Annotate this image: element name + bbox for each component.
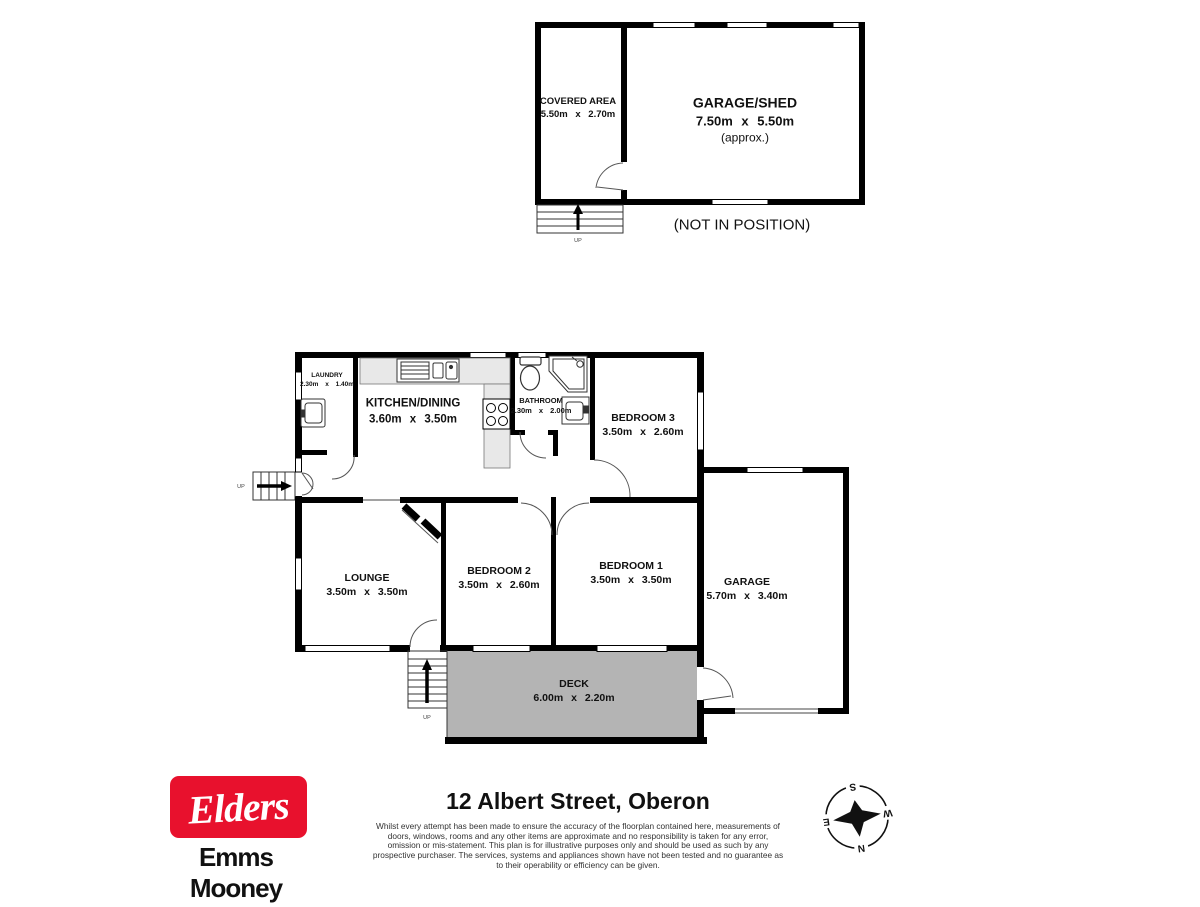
deck-stairs — [408, 651, 447, 708]
entry-stairs — [253, 472, 295, 500]
bedroom2-door — [402, 506, 440, 543]
not-in-position-caption: (NOT IN POSITION) — [674, 217, 810, 234]
room-label-laundry: LAUNDRY 2.30m x 1.40m — [300, 372, 354, 390]
compass-icon: N E S W — [814, 774, 900, 860]
room-label-bathroom: BATHROOM 2.30m x 2.00m — [511, 396, 572, 416]
room-label-kitchen-dining: KITCHEN/DINING 3.60m x 3.50m — [366, 396, 461, 427]
outbuilding-door — [596, 163, 623, 190]
shower-icon — [549, 356, 587, 392]
compass-n: N — [857, 842, 866, 854]
room-label-garage: GARAGE 5.70m x 3.40m — [706, 575, 787, 603]
disclaimer-text: Whilst every attempt has been made to en… — [372, 822, 784, 871]
floorplan-drawing: N E S W — [0, 0, 1200, 907]
outbuilding-stairs — [537, 204, 623, 233]
room-label-lounge: LOUNGE 3.50m x 3.50m — [326, 571, 407, 599]
floorplan-page: N E S W COVERED AREA 5.50m x 2.70m GARAG… — [0, 0, 1200, 907]
stove-icon — [483, 399, 510, 429]
up-label-shed-stairs: UP — [574, 238, 582, 244]
elders-logo-text: Elders — [187, 781, 290, 833]
room-label-bedroom2: BEDROOM 2 3.50m x 2.60m — [458, 564, 539, 592]
garage-door-opening — [735, 709, 818, 713]
kitchen-sink — [397, 359, 459, 382]
room-label-bedroom3: BEDROOM 3 3.50m x 2.60m — [602, 411, 683, 439]
room-label-covered-area: COVERED AREA 5.50m x 2.70m — [540, 96, 616, 122]
laundry-tub-icon — [301, 399, 325, 427]
room-label-bedroom1: BEDROOM 1 3.50m x 3.50m — [590, 559, 671, 587]
deck-bottom-wall — [445, 737, 707, 744]
page-title: 12 Albert Street, Oberon — [378, 788, 778, 815]
elders-logo: Elders — [170, 776, 307, 838]
agency-name: Emms Mooney — [160, 842, 312, 904]
toilet-icon — [520, 357, 541, 390]
room-label-garage-shed: GARAGE/SHED 7.50m x 5.50m (approx.) — [693, 94, 797, 147]
up-label-entry-stairs: UP — [237, 484, 245, 490]
room-label-deck: DECK 6.00m x 2.20m — [533, 677, 614, 705]
up-label-deck-stairs: UP — [423, 715, 431, 721]
